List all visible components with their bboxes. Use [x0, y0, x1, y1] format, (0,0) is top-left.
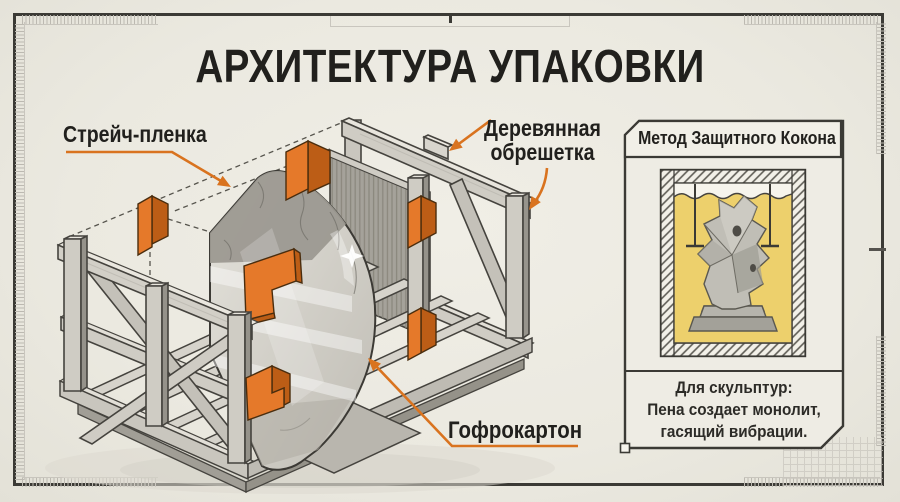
arrow-crate-post [529, 168, 547, 210]
corner-protector-right-upper [408, 196, 436, 248]
caption-line-3: гасящий вибрации. [638, 421, 831, 443]
caption-line-2: Пена создает монолит, [638, 399, 831, 421]
label-cardboard: Гофрокартон [448, 417, 582, 445]
caption-line-1: Для скульптур: [638, 377, 831, 399]
label-wooden-crate-line2: обрешетка [484, 140, 601, 164]
side-panel-caption: Для скульптур: Пена создает монолит, гас… [638, 377, 831, 443]
cocoon-illustration [661, 170, 805, 356]
corner-protector-floating-left [138, 196, 168, 255]
corner-protector-right-lower [408, 308, 436, 360]
label-wooden-crate: Деревянная обрешетка [484, 116, 601, 164]
page-title: АРХИТЕКТУРА УПАКОВКИ [72, 39, 828, 93]
label-wooden-crate-line1: Деревянная [484, 116, 601, 140]
side-panel-header: Метод Защитного Кокона [638, 128, 830, 149]
arrow-stretch-film [66, 152, 231, 187]
label-stretch-film: Стрейч-пленка [63, 121, 207, 148]
infographic-packaging-architecture: АРХИТЕКТУРА УПАКОВКИ Стрейч-пленка Дерев… [0, 0, 900, 502]
corner-protector-top [286, 141, 330, 200]
panel-handle-square [621, 444, 630, 453]
